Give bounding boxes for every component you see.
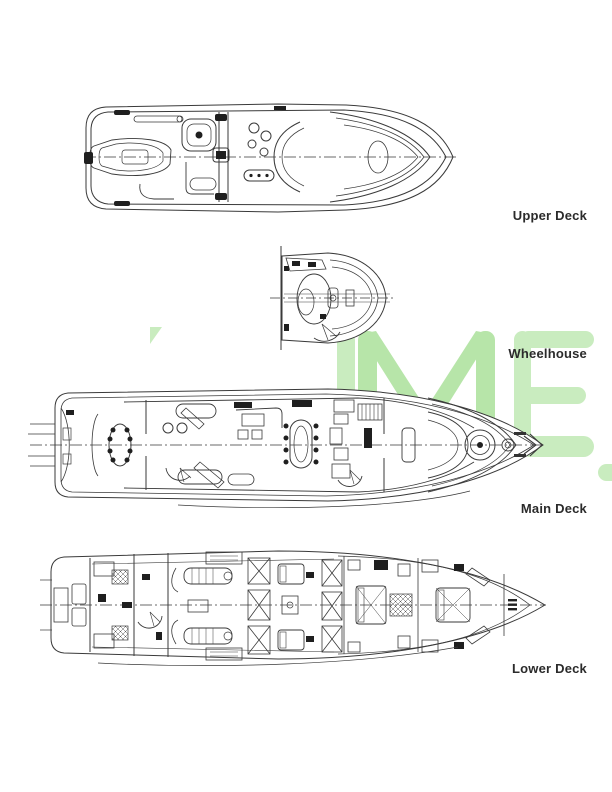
watermark-fragment-right (598, 464, 612, 481)
bow-station-mark (508, 599, 517, 610)
wheelhouse-plan (270, 244, 396, 352)
deck-label-main: Main Deck (521, 501, 587, 516)
main-deck-plan (28, 384, 564, 524)
upper-deck-plan (78, 100, 462, 216)
watermark-fragment (150, 327, 162, 344)
deck-label-wheelhouse: Wheelhouse (508, 346, 587, 361)
lower-deck-plan (38, 544, 554, 670)
deck-label-upper: Upper Deck (513, 208, 587, 223)
deck-label-lower: Lower Deck (512, 661, 587, 676)
deck-plan-page: Upper Deck Wheelhouse Main Deck Lower De… (0, 0, 612, 792)
